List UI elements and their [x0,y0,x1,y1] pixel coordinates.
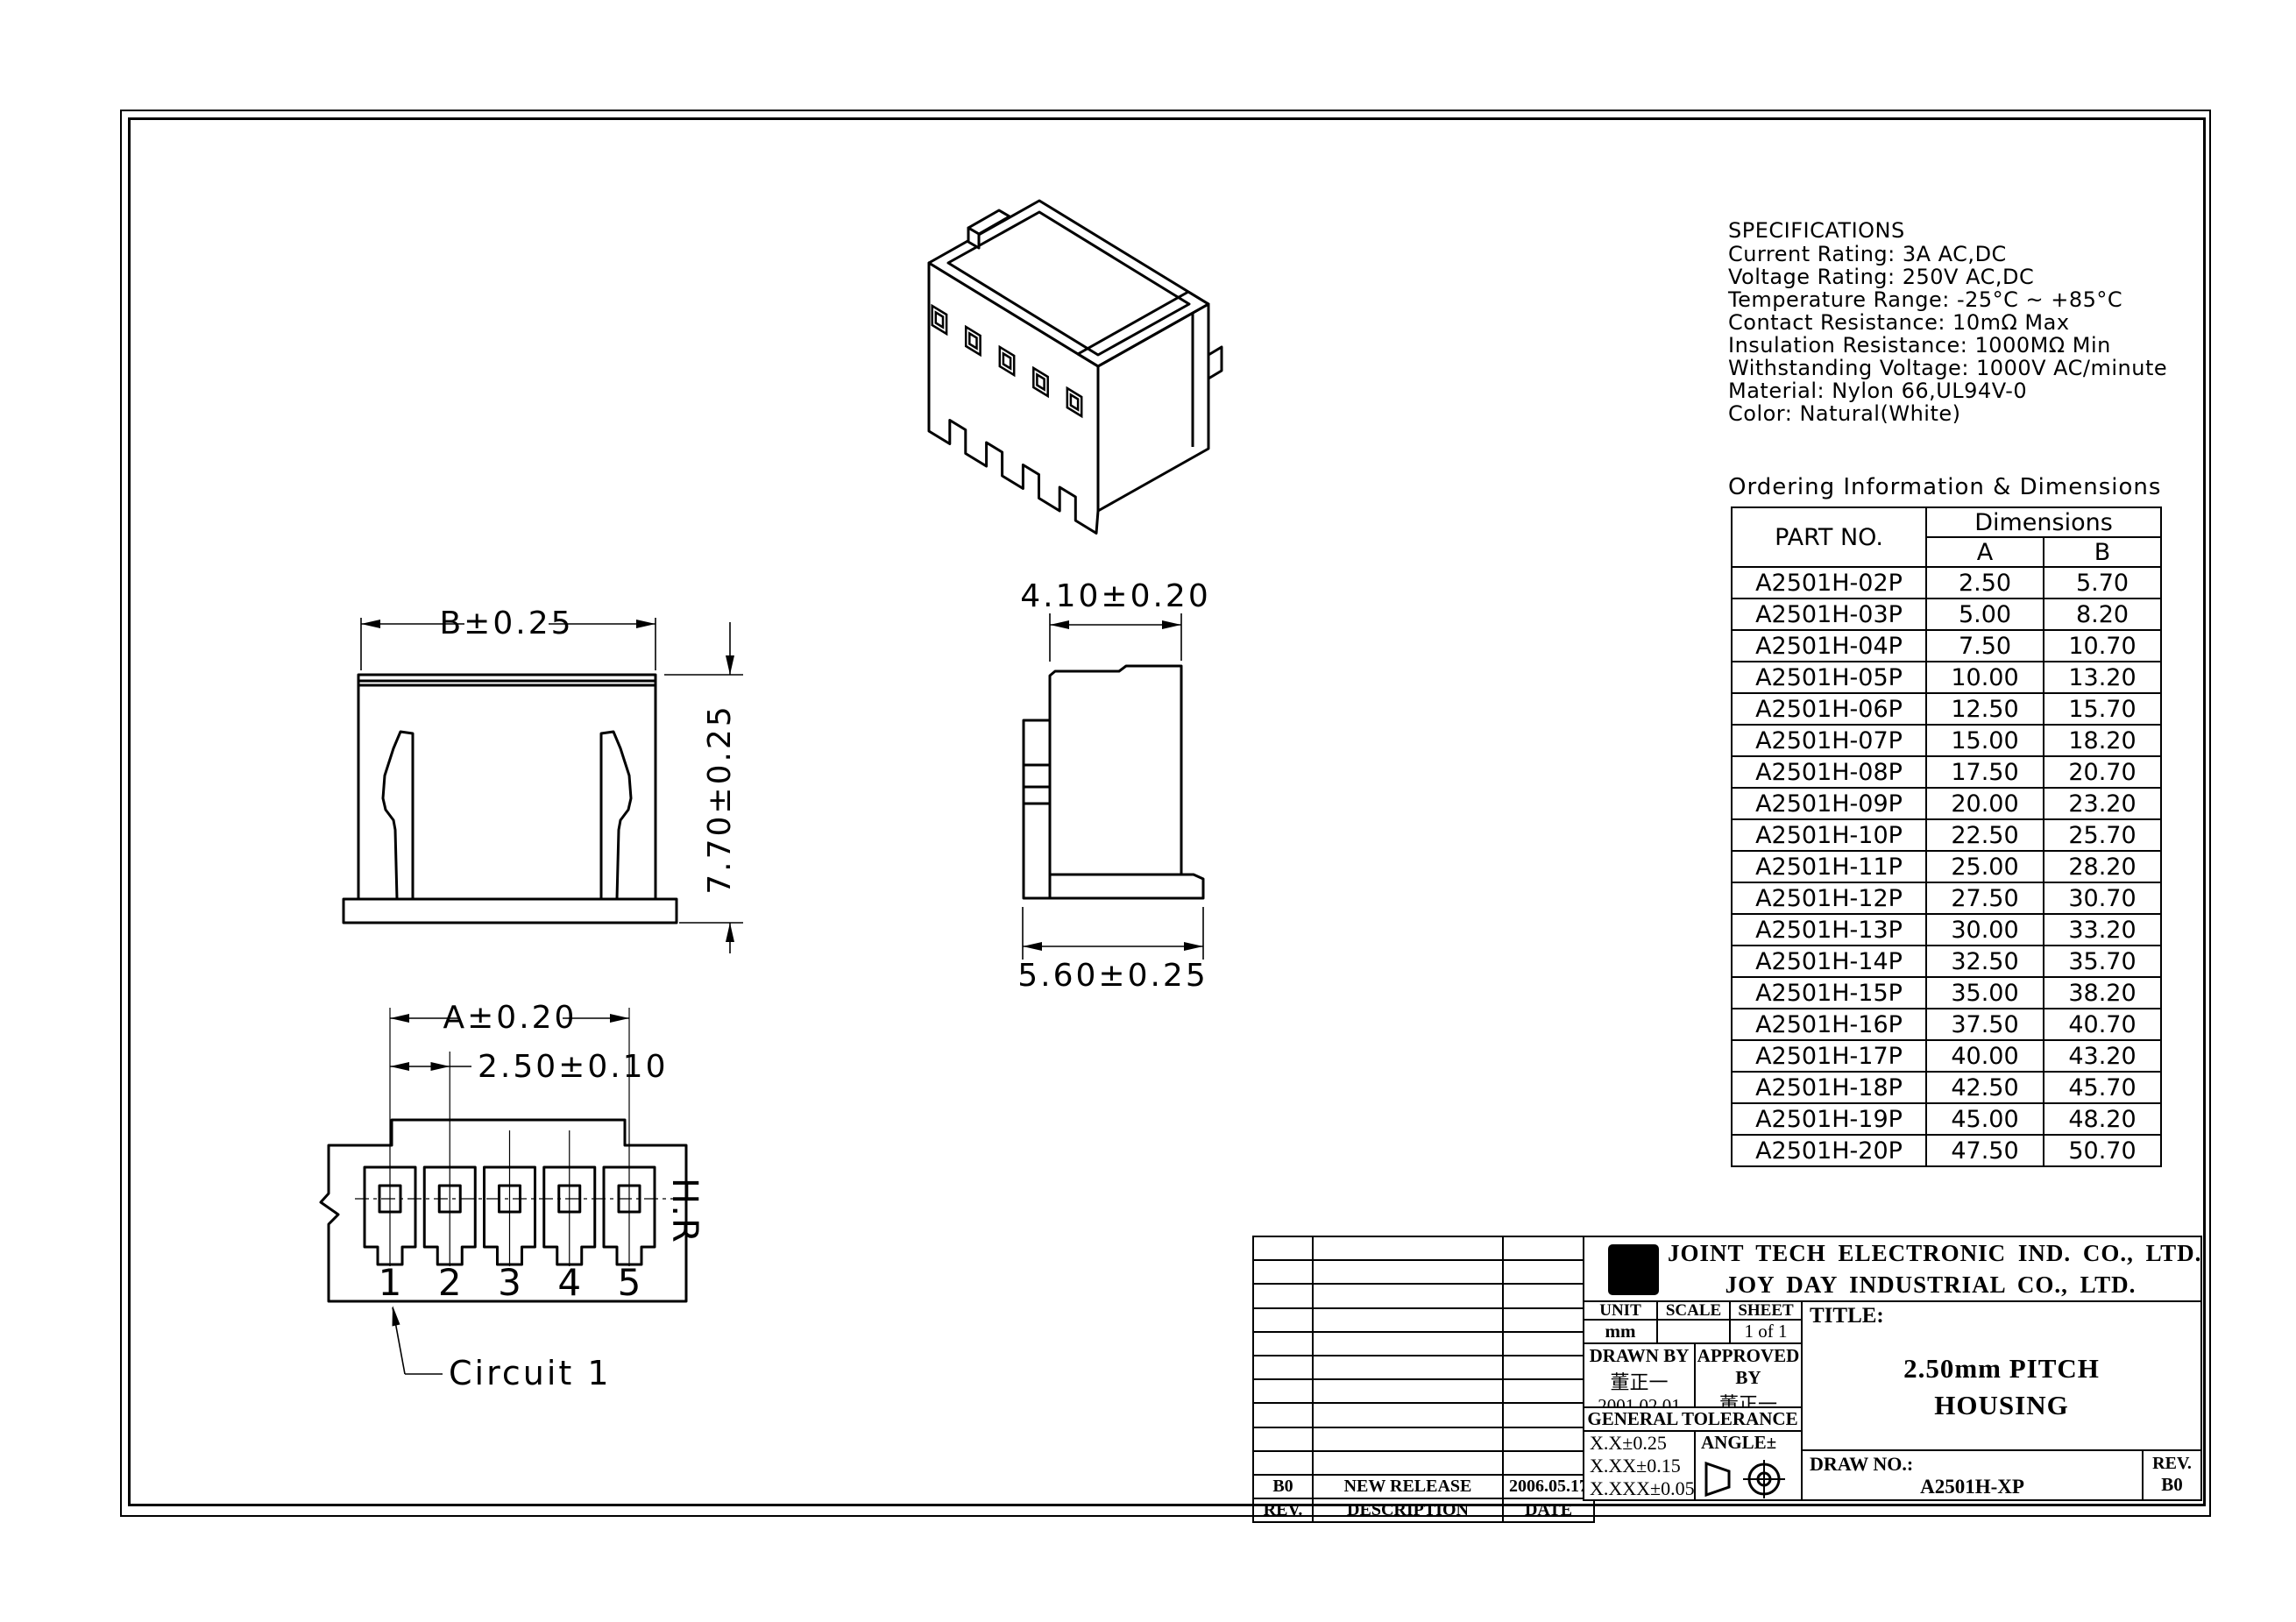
spec-line: Withstanding Voltage: 1000V AC/minute [1728,357,2193,379]
ordering-row: A2501H-08P17.5020.70 [1732,756,2161,788]
ordering-row: A2501H-17P40.0043.20 [1732,1040,2161,1072]
ordering-cell-a: 32.50 [1926,946,2044,977]
side-bottom-dim: 5.60±0.25 [1017,958,1208,994]
drawn-by-signature: 董正一 [1584,1367,1694,1395]
ordering-cell-b: 38.20 [2044,977,2161,1009]
unit-label: UNIT [1583,1300,1658,1321]
bottom-span-dim: A±0.20 [443,1000,578,1036]
sheet-value: 1 of 1 [1729,1319,1803,1344]
pin-number-2: 2 [438,1261,462,1304]
draw-no-label: DRAW NO.: [1803,1451,2142,1476]
ordering-cell-part: A2501H-04P [1732,630,1926,662]
unit-value: mm [1583,1319,1658,1344]
ordering-cell-a: 20.00 [1926,788,2044,819]
ordering-cell-part: A2501H-05P [1732,662,1926,693]
ordering-cell-a: 17.50 [1926,756,2044,788]
angle-cell: ANGLE± [1694,1430,1803,1501]
ordering-cell-b: 18.20 [2044,725,2161,756]
angle-label: ANGLE± [1696,1432,1801,1454]
ordering-cell-b: 5.70 [2044,567,2161,599]
bottom-centerlines [355,1008,692,1266]
title-cell: TITLE: 2.50mm PITCH HOUSING [1801,1300,2202,1451]
front-dimensions [361,618,743,953]
ordering-row: A2501H-06P12.5015.70 [1732,693,2161,725]
ordering-row: A2501H-11P25.0028.20 [1732,851,2161,882]
ordering-cell-a: 25.00 [1926,851,2044,882]
front-height-dim: 7.70±0.25 [702,704,738,894]
ordering-cell-part: A2501H-11P [1732,851,1926,882]
pin-number-1: 1 [379,1261,402,1304]
ordering-cell-part: A2501H-02P [1732,567,1926,599]
svg-text:HR: HR [1610,1253,1658,1288]
ordering-cell-a: 30.00 [1926,914,2044,946]
front-outline [344,675,677,923]
ordering-cell-a: 47.50 [1926,1135,2044,1166]
ordering-cell-part: A2501H-12P [1732,882,1926,914]
isometric-view [876,145,1437,548]
revision-empty-row [1253,1236,1594,1260]
ordering-cell-b: 30.70 [2044,882,2161,914]
tolerance-2: X.XX±0.15 [1590,1455,1694,1477]
pin-number-4: 4 [557,1261,581,1304]
polarity-marking: H.R [664,1178,705,1244]
front-view: B±0.25 7.70±0.25 [324,578,771,955]
rev-label: REV. [2144,1454,2200,1474]
rev-cell: REV. B0 [2142,1449,2202,1501]
spec-line: Current Rating: 3A AC,DC [1728,243,2193,266]
ordering-cell-part: A2501H-20P [1732,1135,1926,1166]
revision-empty-row [1253,1427,1594,1451]
ordering-cell-a: 35.00 [1926,977,2044,1009]
revision-empty-row [1253,1260,1594,1284]
ordering-cell-b: 28.20 [2044,851,2161,882]
revision-entry-row: B0NEW RELEASE2006.05.17 [1253,1475,1594,1498]
rev-value: B0 [2144,1474,2200,1496]
draw-no-cell: DRAW NO.: A2501H-XP [1801,1449,2144,1501]
revision-empty-row [1253,1379,1594,1403]
ordering-cell-b: 8.20 [2044,599,2161,630]
ordering-cell-b: 20.70 [2044,756,2161,788]
col-header-part: PART NO. [1732,507,1926,567]
front-latch-right [601,732,631,899]
ordering-cell-part: A2501H-19P [1732,1103,1926,1135]
ordering-cell-a: 10.00 [1926,662,2044,693]
ordering-row: A2501H-02P2.505.70 [1732,567,2161,599]
side-view: 4.10±0.20 5.60±0.25 [990,561,1244,1008]
company-logo: HR [1607,1243,1660,1296]
ordering-row: A2501H-12P27.5030.70 [1732,882,2161,914]
ordering-row: A2501H-13P30.0033.20 [1732,914,2161,946]
spec-line: Temperature Range: -25°C ~ +85°C [1728,288,2193,311]
revision-table: B0NEW RELEASE2006.05.17REV.DESCRIPTIONDA… [1252,1236,1595,1523]
drawing-sheet: SPECIFICATIONS Current Rating: 3A AC,DC … [0,0,2296,1622]
approved-by-label: APPROVED BY [1696,1345,1801,1389]
iso-side-tab [1208,347,1222,379]
revision-empty-row [1253,1403,1594,1427]
ordering-row: A2501H-07P15.0018.20 [1732,725,2161,756]
ordering-row: A2501H-20P47.5050.70 [1732,1135,2161,1166]
circuit1-label: Circuit 1 [449,1354,612,1392]
ordering-row: A2501H-04P7.5010.70 [1732,630,2161,662]
tolerance-1: X.X±0.25 [1590,1432,1694,1455]
pin-number-5: 5 [618,1261,641,1304]
ordering-cell-part: A2501H-13P [1732,914,1926,946]
bottom-view: A±0.20 2.50±0.10 1 2 3 4 5 H.R Circuit 1 [315,999,894,1411]
revision-empty-row [1253,1332,1594,1356]
ordering-row: A2501H-10P22.5025.70 [1732,819,2161,851]
draw-no-value: A2501H-XP [1803,1476,2142,1498]
revision-empty-row [1253,1451,1594,1475]
ordering-cell-a: 40.00 [1926,1040,2044,1072]
ordering-cell-part: A2501H-17P [1732,1040,1926,1072]
tolerance-3: X.XXX±0.05 [1590,1477,1694,1500]
scale-label: SCALE [1656,1300,1731,1321]
pin-number-3: 3 [498,1261,521,1304]
ordering-row: A2501H-09P20.0023.20 [1732,788,2161,819]
ordering-cell-part: A2501H-18P [1732,1072,1926,1103]
ordering-row: A2501H-16P37.5040.70 [1732,1009,2161,1040]
company-name-1: JOINT TECH ELECTRONIC IND. CO., LTD. [1668,1240,2193,1267]
ordering-title: Ordering Information & Dimensions [1728,474,2161,500]
third-angle-projection-icon [1703,1460,1799,1498]
ordering-row: A2501H-18P42.5045.70 [1732,1072,2161,1103]
revision-empty-row [1253,1308,1594,1332]
ordering-cell-b: 15.70 [2044,693,2161,725]
revision-empty-row [1253,1356,1594,1379]
sheet-label: SHEET [1729,1300,1803,1321]
ordering-row: A2501H-14P32.5035.70 [1732,946,2161,977]
ordering-cell-a: 5.00 [1926,599,2044,630]
ordering-cell-part: A2501H-06P [1732,693,1926,725]
col-header-a: A [1926,537,2044,567]
col-header-dimensions: Dimensions [1926,507,2161,537]
ordering-cell-a: 15.00 [1926,725,2044,756]
drawn-by-label: DRAWN BY [1584,1345,1694,1367]
ordering-cell-part: A2501H-10P [1732,819,1926,851]
ordering-cell-a: 37.50 [1926,1009,2044,1040]
spec-line: Voltage Rating: 250V AC,DC [1728,266,2193,288]
ordering-cell-b: 10.70 [2044,630,2161,662]
revision-header-row: REV.DESCRIPTIONDATE [1253,1498,1594,1522]
spec-line: Contact Resistance: 10mΩ Max [1728,311,2193,334]
revision-table-body: B0NEW RELEASE2006.05.17REV.DESCRIPTIONDA… [1253,1236,1594,1522]
ordering-cell-a: 7.50 [1926,630,2044,662]
ordering-row: A2501H-19P45.0048.20 [1732,1103,2161,1135]
ordering-cell-a: 27.50 [1926,882,2044,914]
ordering-cell-part: A2501H-14P [1732,946,1926,977]
ordering-cell-part: A2501H-08P [1732,756,1926,788]
drawing-title-line1: 2.50mm PITCH [1803,1353,2200,1385]
drawing-title-line2: HOUSING [1803,1390,2200,1421]
side-top-dim: 4.10±0.20 [1020,578,1210,614]
ordering-cell-b: 35.70 [2044,946,2161,977]
ordering-cell-b: 13.20 [2044,662,2161,693]
general-tolerance-title: GENERAL TOLERANCE [1583,1406,1803,1432]
ordering-cell-a: 2.50 [1926,567,2044,599]
spec-line: Material: Nylon 66,UL94V-0 [1728,379,2193,402]
revision-empty-row [1253,1284,1594,1307]
ordering-cell-part: A2501H-07P [1732,725,1926,756]
specifications: SPECIFICATIONS Current Rating: 3A AC,DC … [1728,219,2193,425]
spec-line: Color: Natural(White) [1728,402,2193,425]
scale-value [1656,1319,1731,1344]
ordering-table: PART NO. Dimensions A B A2501H-02P2.505.… [1731,506,2162,1167]
ordering-row: A2501H-03P5.008.20 [1732,599,2161,630]
tolerance-values: X.X±0.25 X.XX±0.15 X.XXX±0.05 [1583,1430,1696,1501]
ordering-cell-b: 23.20 [2044,788,2161,819]
approved-by-cell: APPROVED BY 董正一 2001.02.01 [1694,1342,1803,1408]
ordering-cell-part: A2501H-09P [1732,788,1926,819]
ordering-cell-b: 43.20 [2044,1040,2161,1072]
ordering-cell-b: 50.70 [2044,1135,2161,1166]
front-latch-left [383,732,413,899]
company-header: HR JOINT TECH ELECTRONIC IND. CO., LTD. … [1583,1236,2202,1302]
ordering-table-body: A2501H-02P2.505.70A2501H-03P5.008.20A250… [1732,567,2161,1166]
title-block: B0NEW RELEASE2006.05.17REV.DESCRIPTIONDA… [1252,1236,2200,1501]
ordering-cell-a: 45.00 [1926,1103,2044,1135]
ordering-cell-part: A2501H-03P [1732,599,1926,630]
company-name-2: JOY DAY INDUSTRIAL CO., LTD. [1668,1271,2193,1299]
ordering-cell-a: 12.50 [1926,693,2044,725]
ordering-cell-b: 45.70 [2044,1072,2161,1103]
ordering-cell-b: 40.70 [2044,1009,2161,1040]
ordering-cell-a: 42.50 [1926,1072,2044,1103]
title-label: TITLE: [1803,1302,2200,1328]
ordering-cell-b: 33.20 [2044,914,2161,946]
drawn-by-cell: DRAWN BY 董正一 2001.02.01 [1583,1342,1696,1408]
specifications-title: SPECIFICATIONS [1728,219,2193,242]
col-header-b: B [2044,537,2161,567]
front-width-dim: B±0.25 [439,606,573,641]
ordering-row: A2501H-15P35.0038.20 [1732,977,2161,1009]
ordering-cell-part: A2501H-16P [1732,1009,1926,1040]
ordering-row: A2501H-05P10.0013.20 [1732,662,2161,693]
ordering-cell-b: 25.70 [2044,819,2161,851]
ordering-cell-b: 48.20 [2044,1103,2161,1135]
bottom-pitch-dim: 2.50±0.10 [478,1049,668,1085]
ordering-cell-part: A2501H-15P [1732,977,1926,1009]
spec-line: Insulation Resistance: 1000MΩ Min [1728,334,2193,357]
ordering-cell-a: 22.50 [1926,819,2044,851]
